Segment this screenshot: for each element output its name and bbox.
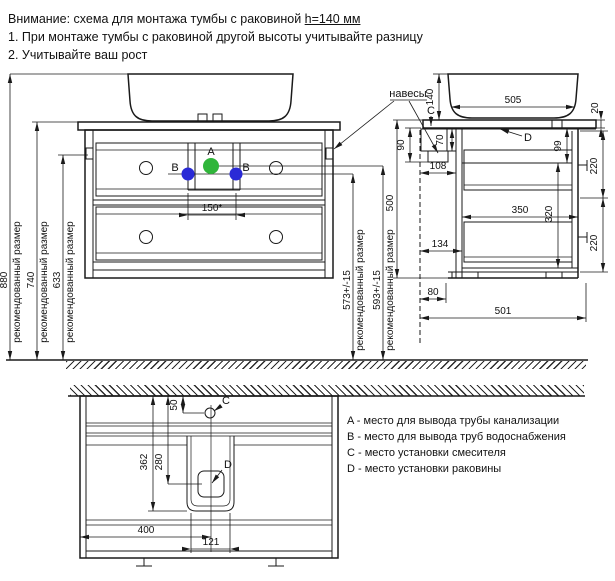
dim-arrowhead: [420, 297, 429, 301]
dim-740-note: рекомендованный размер: [39, 221, 50, 343]
dim-arrowhead: [601, 198, 605, 207]
dim-arrowhead: [351, 174, 355, 183]
dim-arrowhead: [599, 111, 603, 120]
dim-arrowhead: [450, 129, 454, 138]
dim-500-value: 500: [385, 194, 396, 211]
dim-arrowhead: [565, 154, 569, 163]
point-a-label: A: [207, 146, 215, 158]
dim-505-value: 505: [505, 95, 522, 106]
dim-arrowhead: [569, 215, 578, 219]
cabinet-plan: [80, 396, 338, 558]
dim-arrowhead: [334, 142, 342, 149]
dim-arrowhead: [577, 316, 586, 320]
dim-633-value: 633: [52, 271, 63, 288]
dim-573-value: 573+/-15: [342, 270, 353, 310]
legend-item-b: B - место для вывода труб водоснабжения: [347, 429, 609, 445]
installation-scheme: Внимание: схема для монтажа тумбы с рако…: [0, 0, 615, 581]
dim-arrowhead: [447, 171, 456, 175]
dim-400-value: 400: [138, 525, 155, 536]
dim-arrowhead: [166, 475, 170, 484]
dim-arrowhead: [500, 129, 509, 134]
dim-121-value: 121: [203, 537, 220, 548]
dim-arrowhead: [351, 351, 355, 360]
dim-arrowhead: [80, 535, 89, 539]
dim-573-note: рекомендованный размер: [355, 229, 366, 351]
dim-arrowhead: [408, 153, 412, 162]
hinge-mark-right: [326, 148, 333, 159]
drawer2-knob: [270, 231, 283, 244]
dim-220a-value: 220: [589, 157, 600, 174]
legend-item-c: C - место установки смесителя: [347, 445, 609, 461]
dim-arrowhead: [8, 74, 12, 83]
dim-220b-value: 220: [589, 234, 600, 251]
dim-arrowhead: [556, 259, 560, 268]
dim-108-value: 108: [430, 161, 447, 172]
dim-arrowhead: [151, 502, 155, 511]
dim-501-value: 501: [495, 306, 512, 317]
legend: A - место для вывода трубы канализации B…: [347, 413, 609, 477]
point-d-label-side: D: [524, 132, 532, 144]
dim-arrowhead: [381, 351, 385, 360]
hinge-mark-left: [86, 148, 93, 159]
dim-arrowhead: [181, 396, 185, 405]
plinth-notch: [546, 272, 562, 278]
dim-280-value: 280: [154, 453, 165, 470]
dim-arrowhead: [420, 171, 429, 175]
dim-arrowhead: [381, 166, 385, 175]
dim-593-note: рекомендованный размер: [385, 229, 396, 351]
dim-50-value: 50: [169, 399, 180, 411]
dim-880-note: рекомендованный размер: [12, 221, 23, 343]
countertop-front: [78, 122, 340, 130]
dim-arrowhead: [420, 249, 429, 253]
dim-arrowhead: [420, 316, 429, 320]
dim-arrowhead: [601, 189, 605, 198]
drawer1-knob: [270, 162, 283, 175]
dim-arrowhead: [212, 475, 219, 483]
pipe-channel-outer: [187, 436, 234, 511]
countertop-side: [423, 120, 596, 128]
dim-arrowhead: [462, 215, 471, 219]
dim-362-value: 362: [139, 453, 150, 470]
water-point-b: [182, 168, 195, 181]
dim-350-value: 350: [512, 205, 529, 216]
dim-90-value: 90: [396, 139, 407, 151]
dim-arrowhead: [437, 74, 441, 83]
dim-arrowhead: [151, 396, 155, 405]
hinges-leader-left: [334, 101, 394, 149]
dim-arrowhead: [395, 120, 399, 129]
dim-arrowhead: [453, 249, 462, 253]
point-d-label-plan: D: [224, 459, 232, 471]
water-point-b: [230, 168, 243, 181]
faucet-hole-c: [205, 408, 215, 418]
dim-arrowhead: [450, 142, 454, 151]
dim-arrowhead: [556, 163, 560, 172]
dim-arrowhead: [181, 404, 185, 413]
drawing: A B B 150* 880 рекомендованный размер 74…: [0, 0, 615, 581]
dim-arrowhead: [437, 297, 446, 301]
drawer2-knob: [140, 231, 153, 244]
hinges-callout: навесы: [389, 88, 427, 100]
dim-320-value: 320: [544, 205, 555, 222]
dim-740-value: 740: [26, 271, 37, 288]
dim-arrowhead: [35, 351, 39, 360]
dim-arrowhead: [408, 128, 412, 137]
dim-593-value: 593+/-15: [372, 270, 383, 310]
drawer2-box-side: [464, 222, 572, 262]
sink-bowl-front: [128, 74, 293, 121]
dim-134-value: 134: [432, 239, 449, 250]
dim-arrowhead: [61, 155, 65, 164]
dim-633-note: рекомендованный размер: [65, 221, 76, 343]
point-c-label-plan: C: [222, 395, 230, 407]
dim-arrowhead: [429, 117, 433, 126]
dim-arrowhead: [601, 263, 605, 272]
dim-arrowhead: [437, 111, 441, 120]
drawer1-knob: [140, 162, 153, 175]
front-view: A B B 150* 880 рекомендованный размер 74…: [0, 74, 396, 360]
dim-150-value: 150*: [202, 203, 223, 214]
legend-item-d: D - место установки раковины: [347, 461, 609, 477]
point-c-label-side: C: [427, 105, 435, 117]
point-b-label: B: [171, 162, 178, 174]
dim-arrowhead: [8, 351, 12, 360]
dim-arrowhead: [61, 351, 65, 360]
dim-70-value: 70: [435, 134, 446, 146]
drain-point-a: [203, 158, 219, 174]
drawer1-box-side: [464, 150, 572, 190]
legend-item-a: A - место для вывода трубы канализации: [347, 413, 609, 429]
dim-arrowhead: [179, 213, 188, 217]
dim-80-value: 80: [427, 287, 439, 298]
dim-880-value: 880: [0, 271, 10, 288]
point-b-label: B: [242, 162, 249, 174]
dim-arrowhead: [236, 213, 245, 217]
dim-arrowhead: [35, 122, 39, 131]
